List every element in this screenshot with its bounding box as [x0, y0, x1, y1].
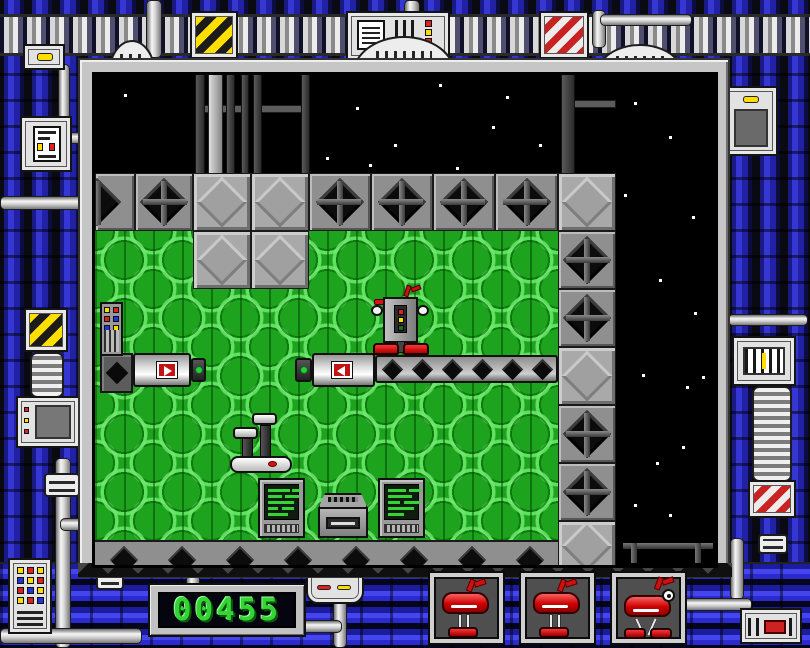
- red-indicator: [764, 620, 786, 634]
- player-robot[interactable]: [372, 287, 430, 355]
- terminal-vents: [384, 524, 419, 533]
- disk-drive[interactable]: [318, 493, 368, 538]
- wall-diamond-tile: [558, 463, 616, 521]
- yellow-lamp: [743, 96, 759, 103]
- score-screen: 00455: [158, 592, 296, 628]
- keypad-button[interactable]: [17, 597, 24, 604]
- hazard-panel-yellow: [192, 13, 236, 57]
- ribbed-cylinder: [752, 386, 792, 482]
- pusher-machine-left[interactable]: [312, 353, 375, 387]
- keypad-button[interactable]: [37, 587, 44, 594]
- crate-tile[interactable]: [558, 173, 616, 231]
- pipe: [600, 14, 692, 26]
- scaffold-pillar: [208, 75, 223, 173]
- slat-panel: [44, 473, 80, 497]
- crate-tile[interactable]: [558, 347, 616, 405]
- ribbed-cylinder: [30, 352, 64, 398]
- terminal-vents: [264, 524, 299, 533]
- red-robot-walker: [616, 577, 681, 639]
- shoulder-pod: [371, 305, 383, 316]
- barcode-panel: [734, 338, 794, 384]
- game-window: 00455: [0, 0, 810, 648]
- keypad-button[interactable]: [17, 577, 24, 584]
- stars: [95, 75, 96, 76]
- robot-body: [383, 297, 418, 343]
- signal-device: [742, 610, 800, 642]
- keypad-button[interactable]: [27, 587, 34, 594]
- space-railing: [623, 543, 713, 563]
- score-value: 00455: [173, 595, 281, 626]
- wall-diamond-tile: [371, 173, 433, 231]
- scaffold-pillar: [226, 75, 235, 173]
- keypad-button[interactable]: [37, 577, 44, 584]
- yellow-bar: [762, 353, 766, 369]
- slat-panel: [758, 534, 788, 554]
- wall-diamond-tile: [558, 289, 616, 347]
- keypad-button[interactable]: [27, 567, 34, 574]
- wall-diamond-tile: [135, 173, 193, 231]
- pipe: [58, 64, 70, 120]
- terminal[interactable]: [378, 478, 425, 538]
- red-light: [24, 429, 29, 434]
- robot-foot: [373, 343, 399, 355]
- keypad-button[interactable]: [17, 587, 24, 594]
- wall-diamond-tile: [309, 173, 371, 231]
- monitor-screen: [734, 109, 768, 147]
- periscope-machine[interactable]: [230, 405, 294, 473]
- life-portrait-1[interactable]: [430, 573, 503, 643]
- crate-tile[interactable]: [193, 173, 251, 231]
- keypad-button[interactable]: [27, 577, 34, 584]
- keypad-button[interactable]: [17, 567, 24, 574]
- antenna: [403, 285, 411, 298]
- terminal-screen: [264, 484, 299, 520]
- terminal[interactable]: [258, 478, 305, 538]
- red-robot-idle: [434, 577, 499, 639]
- shoulder-pod: [417, 305, 429, 316]
- life-portrait-3[interactable]: [612, 573, 685, 643]
- yellow-light: [24, 418, 29, 423]
- scaffold-pillar: [241, 75, 249, 173]
- yellow-light: [337, 585, 351, 590]
- crate-tile[interactable]: [251, 173, 309, 231]
- red-light: [317, 585, 331, 590]
- hazard-panel-red: [541, 13, 587, 57]
- scaffold-pillar: [195, 75, 205, 173]
- conveyor-belt[interactable]: [375, 355, 558, 383]
- red-robot-idle: [525, 577, 590, 639]
- score-display: 00455: [148, 583, 306, 637]
- pusher-head: [191, 358, 206, 382]
- keypad-button[interactable]: [37, 597, 44, 604]
- pusher-head: [295, 358, 312, 382]
- life-portrait-2[interactable]: [521, 573, 594, 643]
- crate-tile: [558, 521, 616, 568]
- pipe: [0, 196, 88, 210]
- crate-tile[interactable]: [251, 231, 309, 289]
- red-lamp: [398, 309, 404, 315]
- wall-diamond-tile: [95, 173, 135, 231]
- wall-diamond-tile: [433, 173, 495, 231]
- yellow-lamp: [37, 53, 53, 61]
- keypad-button[interactable]: [27, 597, 34, 604]
- robot-foot: [403, 343, 429, 355]
- pipe: [728, 314, 808, 326]
- bottom-wall: [95, 540, 558, 568]
- keypad-button[interactable]: [37, 567, 44, 574]
- yellow-light: [425, 29, 432, 36]
- terminal-screen: [384, 484, 419, 520]
- wall-diamond-tile: [558, 405, 616, 463]
- control-panel[interactable]: [100, 302, 123, 356]
- monitor: [726, 88, 776, 154]
- pusher-anchor-block: [100, 353, 133, 393]
- hazard-panel-red: [750, 482, 794, 516]
- yellow-lamp: [398, 317, 404, 323]
- crate-tile[interactable]: [193, 231, 251, 289]
- monitor-screen: [35, 405, 71, 439]
- green-lamp: [398, 325, 404, 331]
- wall-diamond-tile: [558, 231, 616, 289]
- yellow-light: [37, 143, 43, 151]
- scaffold-pillar: [561, 75, 575, 173]
- scaffold-pillar: [301, 75, 310, 173]
- playfield[interactable]: [92, 72, 718, 568]
- red-indicator: [268, 461, 277, 467]
- lamp-panel: [25, 46, 63, 68]
- wall-diamond-tile: [495, 173, 558, 231]
- keypad: [10, 560, 50, 632]
- red-light: [49, 143, 55, 151]
- pipe: [730, 538, 744, 600]
- scaffold-pillar: [253, 75, 262, 173]
- control-box: [22, 118, 70, 170]
- monitor: [18, 398, 78, 446]
- pusher-machine-right[interactable]: [133, 353, 191, 387]
- red-light: [24, 407, 29, 412]
- hazard-panel-yellow: [26, 310, 66, 350]
- red-light: [425, 20, 432, 27]
